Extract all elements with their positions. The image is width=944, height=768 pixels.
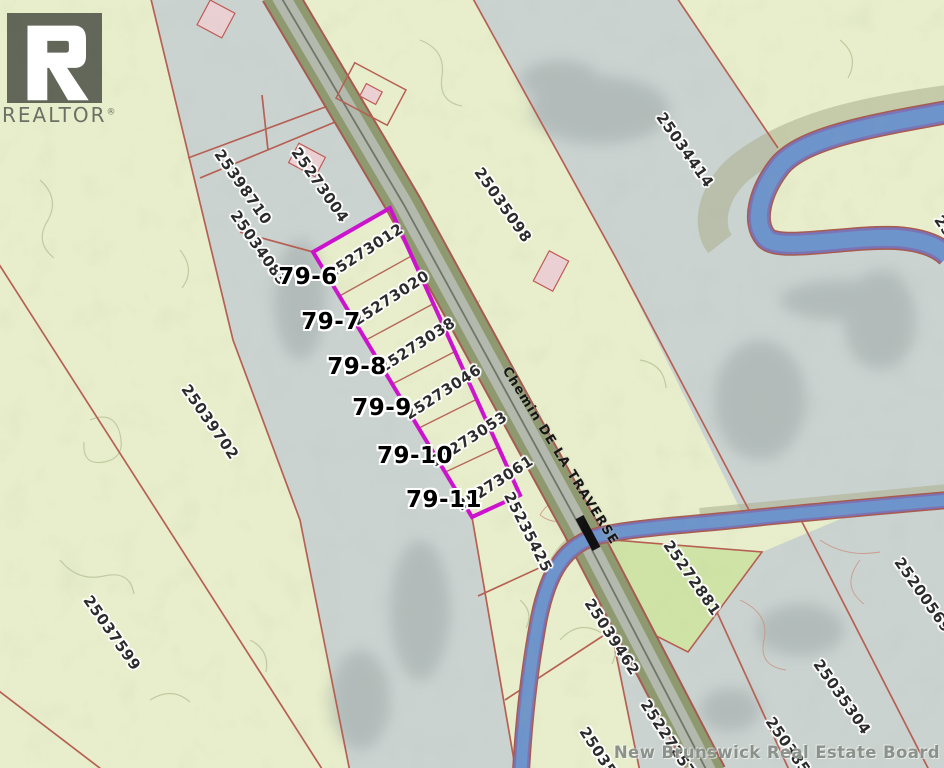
map-terrain-layer	[0, 0, 944, 768]
realtor-r-icon	[7, 13, 102, 103]
registered-symbol: ®	[106, 107, 115, 117]
lot-number-label: 79-7	[301, 309, 361, 335]
lot-number-label: 79-9	[352, 395, 412, 421]
lot-number-label: 79-6	[278, 264, 338, 290]
realtor-logo	[7, 13, 102, 103]
realtor-wordmark-text: REALTOR	[2, 103, 106, 127]
lot-number-label: 79-10	[377, 443, 453, 469]
terrain-noise-overlay	[0, 0, 944, 768]
lot-number-label: 79-11	[406, 487, 482, 513]
realtor-wordmark: REALTOR®	[2, 103, 114, 127]
watermark: New Brunswick Real Estate Board	[614, 743, 940, 762]
map-canvas: 25398710 25273004 25034083 25035098 2503…	[0, 0, 944, 768]
lot-number-label: 79-8	[327, 354, 387, 380]
